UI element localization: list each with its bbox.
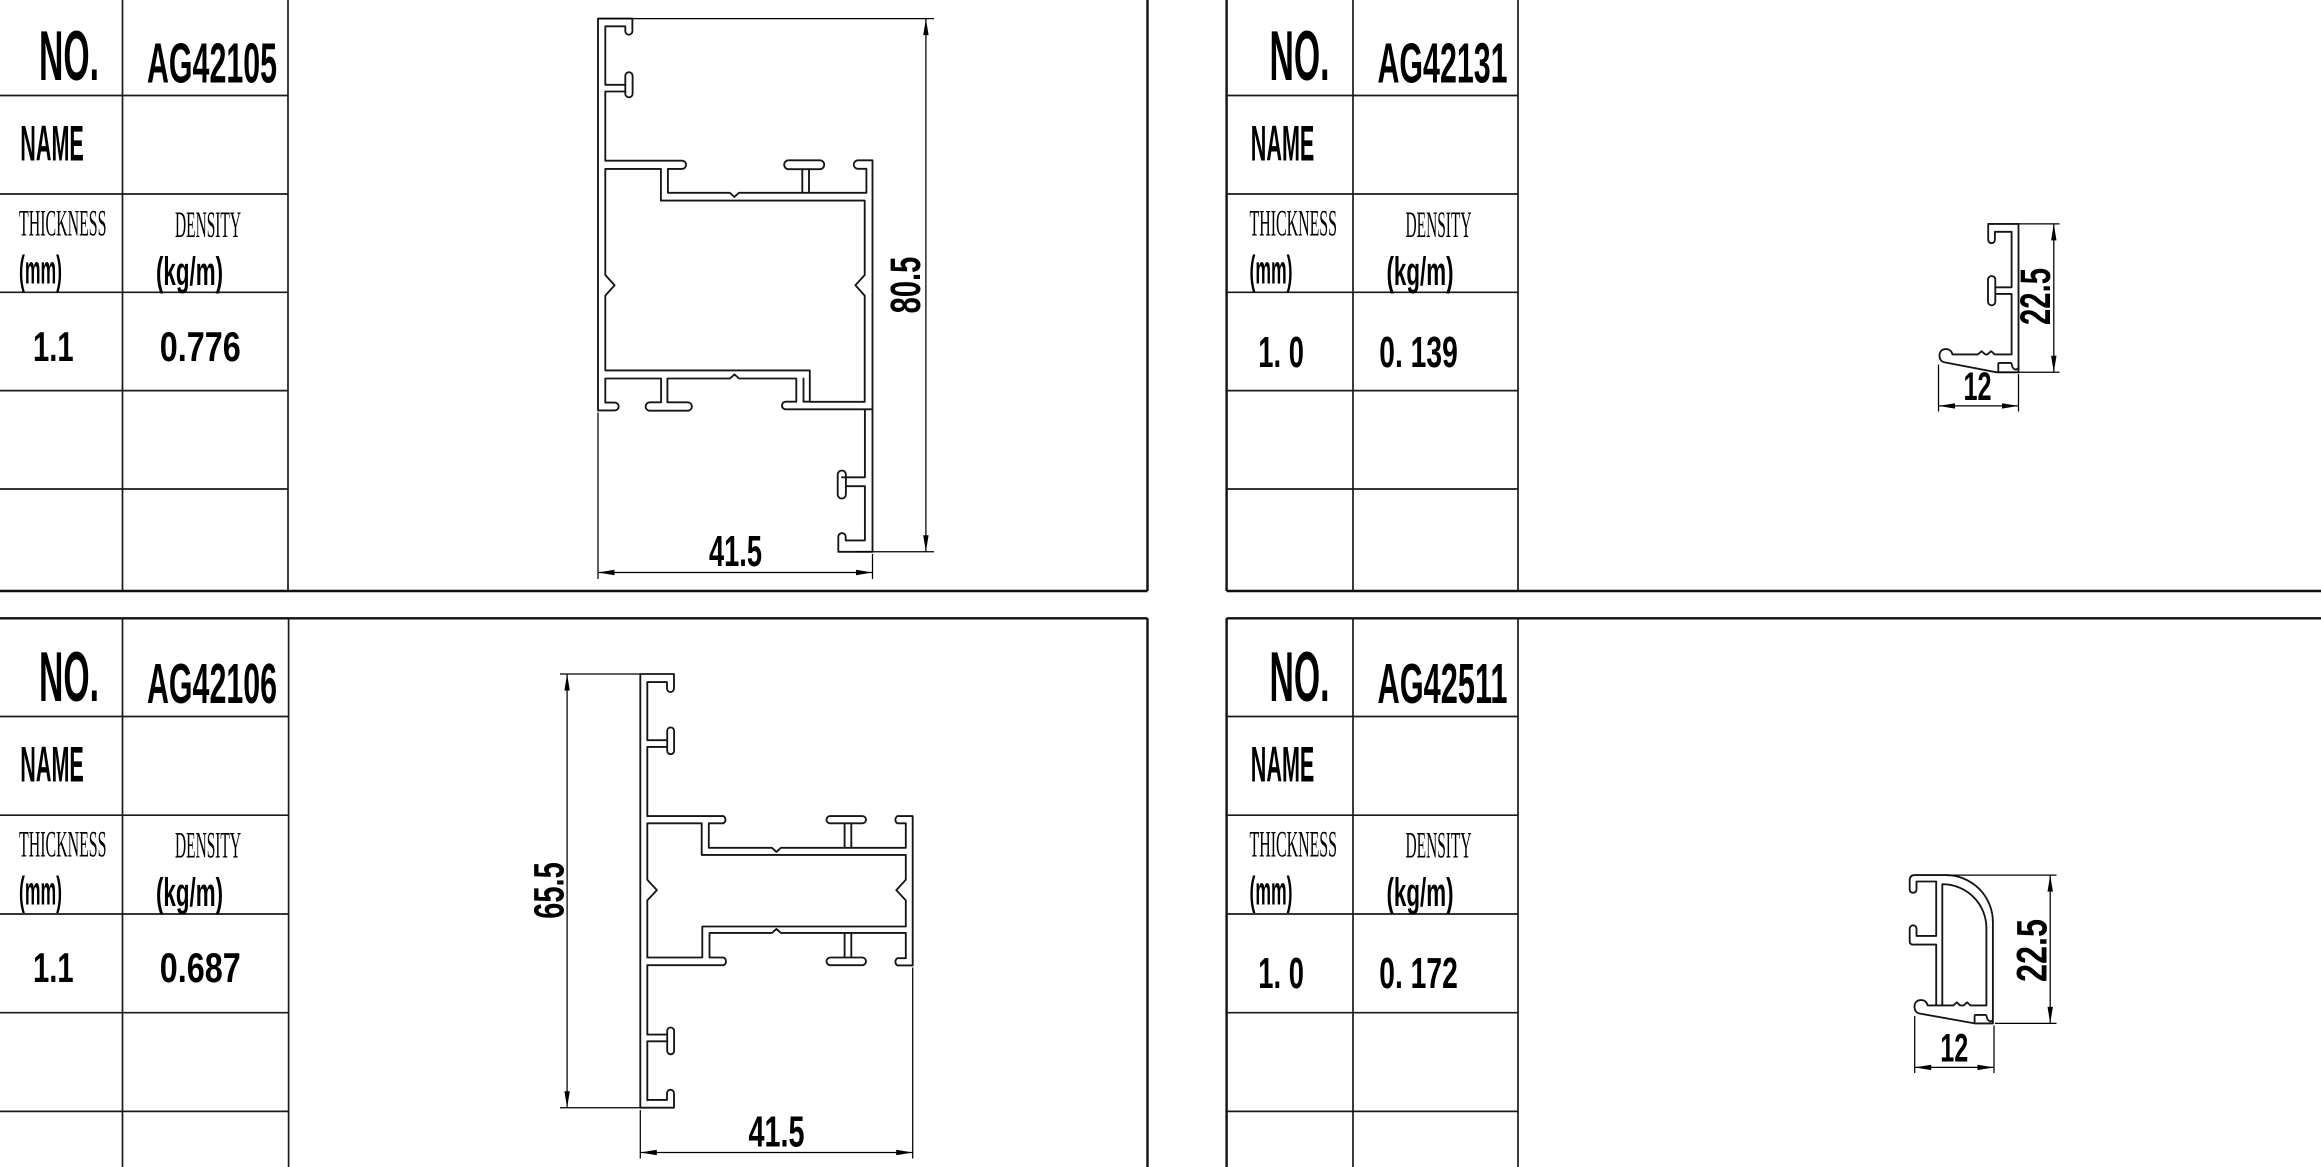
svg-text:DENSITY: DENSITY [1406,204,1472,245]
svg-text:1.1: 1.1 [33,323,74,370]
svg-text:12: 12 [1964,365,1992,409]
svg-text:(mm): (mm) [1250,869,1293,913]
svg-text:THICKNESS: THICKNESS [19,823,107,864]
svg-text:(mm): (mm) [19,869,62,913]
svg-text:(mm): (mm) [1250,249,1293,293]
svg-text:NO.: NO. [1270,637,1330,716]
svg-text:NO.: NO. [1270,16,1330,95]
svg-text:NAME: NAME [20,115,84,172]
svg-text:THICKNESS: THICKNESS [19,203,107,244]
svg-text:(kg/m): (kg/m) [1387,250,1454,294]
svg-text:THICKNESS: THICKNESS [1250,823,1338,864]
svg-text:(kg/m): (kg/m) [1387,871,1454,915]
svg-text:65.5: 65.5 [526,862,574,919]
svg-text:AG42105: AG42105 [147,31,277,94]
svg-text:NAME: NAME [1251,736,1315,793]
svg-text:DENSITY: DENSITY [175,825,241,866]
svg-text:(kg/m): (kg/m) [156,250,223,294]
svg-text:22.5: 22.5 [2012,268,2060,325]
svg-text:NAME: NAME [1251,115,1315,172]
svg-text:0. 139: 0. 139 [1379,328,1458,377]
svg-text:NAME: NAME [20,736,84,793]
svg-text:NO.: NO. [39,637,99,716]
svg-text:(kg/m): (kg/m) [156,871,223,915]
svg-text:12: 12 [1940,1026,1968,1070]
svg-text:NO.: NO. [39,16,99,95]
svg-text:80.5: 80.5 [882,257,930,314]
svg-text:0.687: 0.687 [160,944,241,991]
svg-text:1. 0: 1. 0 [1258,328,1304,377]
svg-text:1. 0: 1. 0 [1258,949,1304,998]
svg-text:AG42106: AG42106 [147,652,277,715]
svg-text:0.776: 0.776 [160,323,241,370]
svg-text:DENSITY: DENSITY [1406,825,1472,866]
svg-text:1.1: 1.1 [33,944,74,991]
svg-text:22.5: 22.5 [2009,919,2057,982]
svg-text:(mm): (mm) [19,249,62,293]
svg-text:DENSITY: DENSITY [175,204,241,245]
svg-text:AG42131: AG42131 [1378,31,1508,94]
svg-text:AG42511: AG42511 [1378,652,1508,715]
svg-text:41.5: 41.5 [709,527,762,576]
svg-text:0. 172: 0. 172 [1379,949,1458,998]
svg-text:41.5: 41.5 [749,1108,805,1157]
svg-text:THICKNESS: THICKNESS [1250,203,1338,244]
